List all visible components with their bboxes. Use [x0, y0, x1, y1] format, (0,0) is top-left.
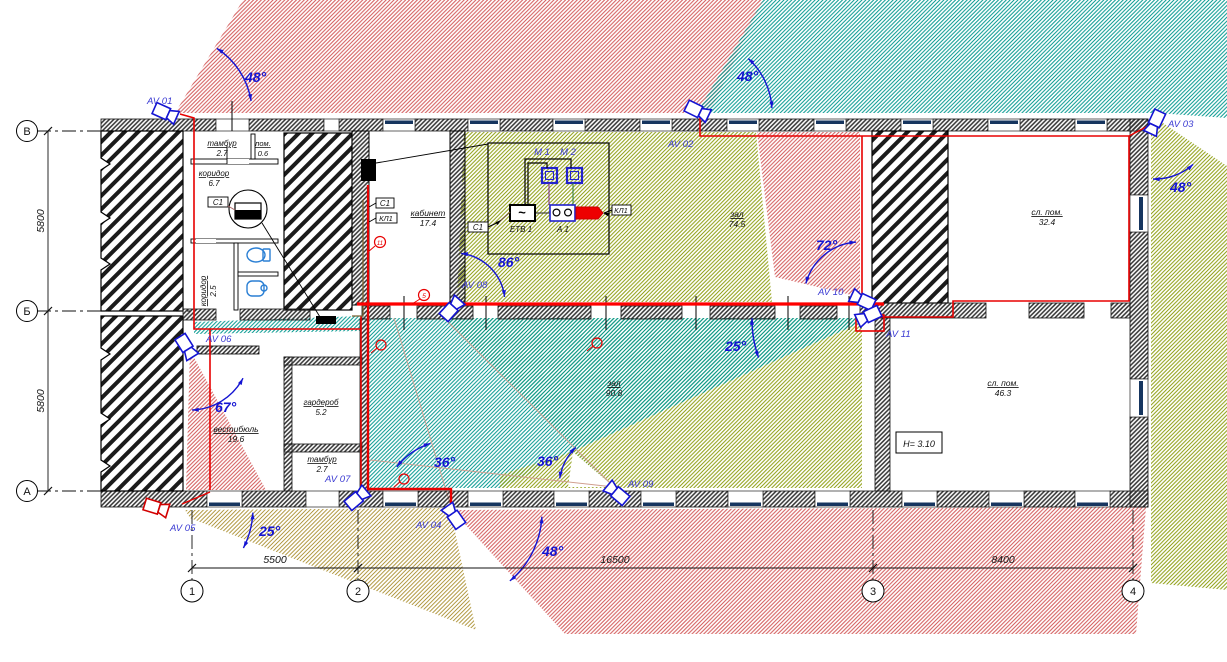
svg-text:46.3: 46.3 [995, 388, 1012, 398]
svg-text:AV 02: AV 02 [667, 139, 694, 150]
svg-text:пом.: пом. [255, 139, 271, 148]
svg-text:48°: 48° [541, 543, 564, 559]
svg-text:0.6: 0.6 [258, 149, 269, 158]
svg-text:6.7: 6.7 [208, 179, 220, 188]
svg-text:2: 2 [355, 586, 361, 598]
svg-text:17.4: 17.4 [420, 218, 437, 228]
svg-text:16500: 16500 [600, 554, 629, 566]
svg-text:86°: 86° [498, 254, 520, 270]
svg-text:коридор: коридор [199, 169, 230, 178]
svg-text:90.8: 90.8 [606, 388, 623, 398]
svg-text:36°: 36° [537, 453, 559, 469]
svg-text:А: А [23, 486, 31, 498]
svg-text:сл. пом.: сл. пом. [1031, 207, 1062, 217]
svg-text:1: 1 [189, 586, 195, 598]
svg-text:гардероб: гардероб [303, 398, 339, 407]
svg-text:25°: 25° [724, 338, 747, 354]
svg-text:В: В [23, 126, 30, 138]
svg-text:AV 10: AV 10 [817, 287, 844, 298]
svg-text:С1: С1 [213, 198, 223, 207]
svg-text:тамбур: тамбур [207, 139, 237, 148]
svg-text:5: 5 [422, 293, 426, 300]
svg-text:36°: 36° [434, 454, 456, 470]
svg-text:48°: 48° [736, 68, 759, 84]
svg-text:2.5: 2.5 [209, 285, 218, 298]
svg-text:8400: 8400 [991, 554, 1015, 566]
svg-text:25°: 25° [258, 523, 281, 539]
svg-text:AV 04: AV 04 [415, 520, 441, 531]
svg-text:зал: зал [729, 209, 743, 219]
svg-text:КЛ1: КЛ1 [379, 214, 393, 223]
svg-text:AV 07: AV 07 [324, 474, 351, 485]
svg-text:5.2: 5.2 [315, 408, 327, 417]
svg-text:Б: Б [23, 306, 30, 318]
svg-text:2.7: 2.7 [315, 465, 328, 474]
svg-text:AV 03: AV 03 [1167, 119, 1194, 130]
svg-text:48°: 48° [244, 69, 267, 85]
svg-text:сл. пом.: сл. пом. [987, 378, 1018, 388]
svg-text:КЛ1: КЛ1 [614, 206, 628, 215]
svg-text:~: ~ [518, 205, 526, 220]
svg-text:С1: С1 [473, 223, 483, 232]
svg-text:74.5: 74.5 [729, 219, 746, 229]
svg-text:М 1: М 1 [534, 147, 550, 158]
svg-text:AV 06: AV 06 [205, 334, 232, 345]
svg-text:4: 4 [1130, 586, 1136, 598]
svg-text:А 1: А 1 [556, 225, 569, 234]
svg-text:М 2: М 2 [560, 147, 577, 158]
svg-text:коридор: коридор [199, 275, 208, 306]
svg-text:AV 01: AV 01 [146, 96, 172, 107]
svg-text:кабинет: кабинет [411, 208, 446, 218]
svg-text:вестибюль: вестибюль [213, 424, 258, 434]
svg-text:72°: 72° [816, 237, 838, 253]
svg-text:AV 08: AV 08 [461, 280, 488, 291]
svg-text:ЕТВ 1: ЕТВ 1 [510, 225, 532, 234]
svg-text:5800: 5800 [35, 389, 47, 413]
svg-text:С1: С1 [380, 199, 390, 208]
svg-text:3: 3 [870, 586, 876, 598]
svg-text:32.4: 32.4 [1039, 217, 1056, 227]
svg-text:48°: 48° [1169, 179, 1192, 195]
svg-text:зал: зал [606, 378, 620, 388]
svg-text:19.6: 19.6 [228, 434, 245, 444]
svg-text:67°: 67° [215, 399, 237, 415]
svg-text:2.7: 2.7 [215, 149, 228, 158]
svg-text:5800: 5800 [35, 209, 47, 233]
svg-text:5500: 5500 [263, 554, 287, 566]
svg-text:AV 09: AV 09 [627, 479, 654, 490]
svg-text:11: 11 [377, 241, 383, 247]
svg-text:AV 11: AV 11 [885, 329, 911, 340]
svg-text:H= 3.10: H= 3.10 [903, 439, 935, 449]
svg-text:тамбур: тамбур [307, 455, 337, 464]
